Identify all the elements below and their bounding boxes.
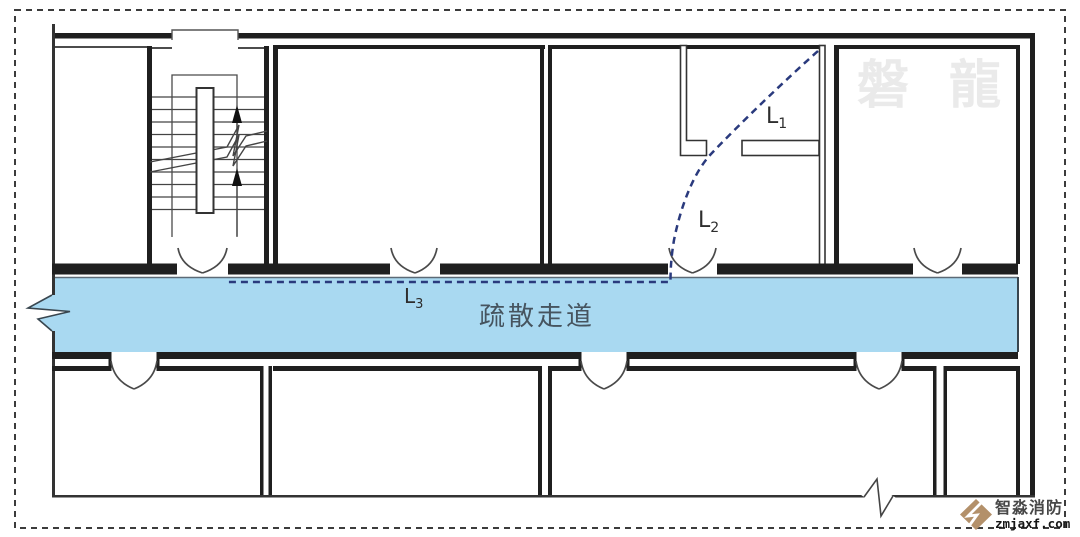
corridor-top-wall	[228, 264, 390, 275]
left-wall	[52, 24, 55, 295]
bottom-room-top-wall	[552, 366, 580, 371]
path-label-l2: L2	[698, 208, 719, 236]
label-sub: 2	[710, 220, 719, 236]
right-wall	[1030, 33, 1035, 497]
bottom-wall	[52, 495, 865, 498]
bottom-divider-wall	[944, 366, 948, 496]
bottom-room-top-wall	[158, 366, 260, 371]
room-c-right-wall	[1016, 45, 1020, 264]
path-label-l1: L1	[766, 104, 787, 132]
bottom-divider-wall	[933, 366, 937, 496]
corridor-bottom-wall	[52, 352, 110, 359]
bottom-room-top-wall	[628, 366, 855, 371]
room-c-double-door-icon	[914, 248, 961, 273]
room-b-double-door-icon	[669, 248, 716, 273]
corridor-top-wall	[962, 264, 1018, 275]
room-b-right-wall	[820, 46, 826, 265]
logo-brand-text: 智淼消防	[995, 498, 1063, 517]
stair-bulkhead-line	[172, 30, 238, 40]
room-c-left-wall	[834, 45, 839, 264]
top-wall	[52, 33, 172, 39]
bottom-divider-wall	[260, 366, 264, 496]
corridor-bottom-wall	[903, 352, 1018, 359]
label-base: L	[766, 104, 779, 129]
corridor-label: 疏散走道	[479, 302, 595, 332]
stair-up-arrow-icon	[232, 105, 242, 123]
bottom-room-right-wall	[1016, 366, 1020, 496]
bottom-divider-wall	[538, 366, 542, 496]
subroom-bottom-wall	[742, 141, 819, 156]
bottom-room-double-door-icon	[856, 361, 902, 389]
stair-up-arrow-icon	[232, 168, 242, 186]
stairwell-right-wall	[264, 46, 269, 264]
corridor-bottom-wall	[628, 352, 855, 359]
bottom-divider-wall	[548, 366, 552, 496]
room-a-double-door-icon	[391, 248, 437, 273]
room-a-top-wall	[273, 45, 545, 49]
label-sub: 3	[415, 297, 423, 312]
room-c-top-wall	[834, 45, 1018, 49]
floor-plan-diagram: 磐龍	[0, 0, 1080, 537]
stairwell	[150, 75, 267, 237]
evacuation-path-line	[224, 51, 818, 282]
bottom-room-double-door-icon	[581, 361, 627, 389]
bottom-room-double-door-icon	[111, 361, 157, 389]
stair-landing	[197, 88, 214, 213]
label-base: L	[698, 208, 711, 233]
brand-logo: 智淼消防 zmjaxf.com	[960, 498, 1071, 531]
room-top-lines	[54, 47, 267, 48]
logo-site-text: zmjaxf.com	[995, 516, 1071, 531]
room-b-left-wall	[548, 45, 552, 264]
top-wall	[238, 33, 1035, 39]
subroom-left-wall	[681, 46, 707, 156]
room-b-top-wall	[552, 45, 825, 49]
label-sub: 1	[778, 116, 787, 132]
bottom-room-top-wall	[273, 366, 538, 371]
bottom-room-top-wall	[52, 366, 110, 371]
corridor-top-wall	[440, 264, 668, 275]
bottom-divider-wall	[269, 366, 273, 496]
bottom-room-top-wall	[947, 366, 1016, 371]
room-a-right-wall	[540, 45, 544, 264]
corridor-top-wall	[717, 264, 913, 275]
room-a-left-wall	[273, 45, 278, 264]
watermark-text: 磐龍	[857, 56, 1041, 116]
stair-double-door-icon	[178, 248, 227, 273]
corridor-bottom-wall	[158, 352, 580, 359]
bottom-room-top-wall	[903, 366, 933, 371]
corridor-top-wall	[52, 264, 177, 275]
screenshot-canvas: 磐龍	[0, 0, 1080, 537]
stairwell-left-wall	[147, 46, 152, 264]
